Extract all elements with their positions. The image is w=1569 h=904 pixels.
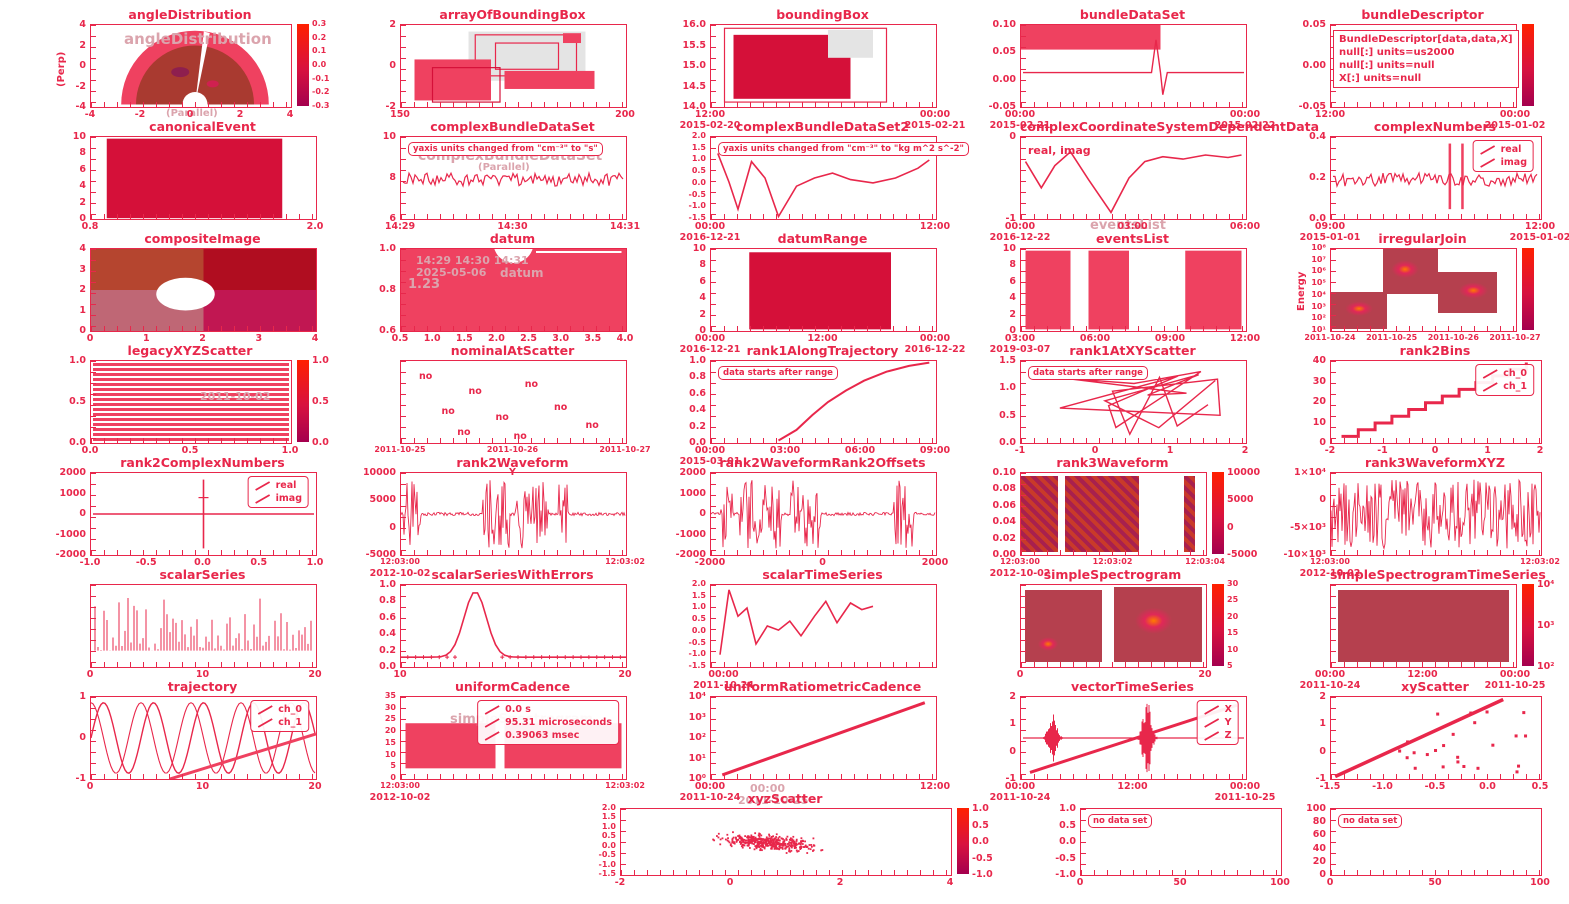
- panel-title-complexNumbers: complexNumbers: [1330, 119, 1540, 134]
- legend-entry: imag: [255, 492, 302, 505]
- y-tick-label: 0.5: [660, 166, 706, 175]
- y-tick-label: 2: [40, 284, 86, 295]
- y-tick-label: 1.5: [660, 143, 706, 152]
- y-axis-label: Energy: [1296, 272, 1307, 311]
- nominal-marker: no: [554, 402, 567, 413]
- axes-scalarSeries: [90, 584, 317, 668]
- y-tick-label: 30: [350, 703, 396, 712]
- y-tick-label: 1: [1280, 718, 1326, 729]
- axes-boundingBox: [710, 24, 937, 108]
- panel-title-compositeImage: compositeImage: [90, 231, 315, 246]
- y-tick-label: 2.0: [660, 131, 706, 140]
- colorbar-tick-label: 0.0: [312, 60, 326, 69]
- y-tick-label: -1.0: [660, 201, 706, 210]
- legend-line-icon: [1482, 382, 1498, 392]
- y-tick-label: 1.0: [660, 154, 706, 163]
- y-tick-label: 0.02: [970, 533, 1016, 544]
- y-tick-label: 0.8: [350, 284, 396, 295]
- colorbar-tick-label: 25: [1227, 595, 1238, 604]
- panel-title-rank2Bins: rank2Bins: [1330, 343, 1540, 358]
- ghost-text: 2011-10-02: [200, 390, 270, 403]
- legend-entry: real: [1480, 143, 1527, 156]
- y-tick-label: -1.0: [660, 649, 706, 658]
- y-tick-label: 1.0: [40, 355, 86, 366]
- plot-area: [1021, 249, 1246, 331]
- y-tick-label: 60: [1280, 829, 1326, 840]
- legend-entry: ch_1: [257, 716, 302, 729]
- nominal-marker: no: [457, 427, 470, 438]
- y-tick-label: 1: [40, 305, 86, 316]
- plot-area: [91, 585, 316, 667]
- y-tick-label: 0.04: [970, 516, 1016, 527]
- annotation-note: real, imag: [1028, 144, 1091, 157]
- y-tick-label: 0: [350, 60, 396, 71]
- legend-line-icon: [1480, 145, 1496, 155]
- legend-entry: 0.0 s: [484, 703, 612, 716]
- panel-title-uniformRatiometricCadence: uniformRatiometricCadence: [710, 679, 935, 694]
- x-tick-label: 2: [798, 877, 882, 888]
- legend-label: 0.0 s: [505, 703, 531, 716]
- legend-label: ch_1: [278, 716, 302, 729]
- legend-box: XYZ: [1197, 700, 1239, 745]
- colorbar-tick-label: 30: [1227, 579, 1238, 588]
- y-tick-label: 16.0: [660, 19, 706, 30]
- legend-line-icon: [257, 705, 273, 715]
- y-tick-label: 0.5: [570, 831, 616, 840]
- x-tick-label: 00:00: [978, 781, 1062, 792]
- axes-scalarSeriesWithErrors: [400, 584, 627, 668]
- plot-area: [401, 473, 626, 555]
- legend-entry: Y: [1204, 716, 1232, 729]
- x-tick-label: 12:03:02: [1498, 557, 1569, 566]
- x-tick-label: 0: [688, 877, 772, 888]
- y-tick-label: 14.5: [660, 81, 706, 92]
- y-tick-label: -0.5: [660, 190, 706, 199]
- legend-label: ch_0: [1503, 367, 1527, 380]
- y-tick-label: 20: [1280, 856, 1326, 867]
- colorbar-tick-label: 1.0: [972, 803, 989, 814]
- colorbar-tick-label: 10000: [1227, 467, 1260, 478]
- x-date-label: 2011-10-25: [1203, 792, 1287, 803]
- y-tick-label: 2: [970, 691, 1016, 702]
- y-tick-label: 10000: [350, 467, 396, 478]
- panel-title-angleDistribution: angleDistribution: [90, 7, 290, 22]
- y-tick-label: 0.0: [570, 841, 616, 850]
- panel-title-datumRange: datumRange: [710, 231, 935, 246]
- colorbar-tick-label: 10²: [1537, 661, 1554, 672]
- y-tick-label: 2: [350, 19, 396, 30]
- panel-title-rank2Waveform: rank2Waveform: [400, 455, 625, 470]
- legend-entry: 95.31 microseconds: [484, 716, 612, 729]
- y-tick-label: 0.05: [1280, 19, 1326, 30]
- y-tick-label: 40: [1280, 355, 1326, 366]
- legend-entry: 0.39063 msec: [484, 729, 612, 742]
- y-tick-label: 10: [350, 750, 396, 759]
- legend-entry: ch_0: [257, 703, 302, 716]
- legend-label: Y: [1225, 716, 1232, 729]
- nominal-marker: no: [442, 406, 455, 417]
- x-tick-label: 12:03:02: [583, 781, 667, 790]
- legend-box: ch_0ch_1: [1475, 364, 1534, 396]
- y-tick-label: 6: [970, 276, 1016, 287]
- y-tick-label: 8: [660, 259, 706, 270]
- axes-rank2WaveformRank2Offsets: [710, 472, 937, 556]
- colorbar: [1212, 472, 1224, 554]
- y-tick-label: 100: [1280, 803, 1326, 814]
- y-tick-label: 0.0: [1030, 836, 1076, 847]
- y-tick-label: 2: [660, 309, 706, 320]
- y-tick-label: 1.0: [570, 822, 616, 831]
- plot-area: [711, 25, 936, 107]
- legend-label: ch_0: [278, 703, 302, 716]
- y-tick-label: 8: [970, 259, 1016, 270]
- y-tick-label: 15: [350, 738, 396, 747]
- legend-line-icon: [255, 494, 271, 504]
- panel-title-irregularJoin: irregularJoin: [1330, 231, 1515, 246]
- panel-title-rank2WaveformRank2Offsets: rank2WaveformRank2Offsets: [710, 455, 935, 470]
- panel-title-trajectory: trajectory: [90, 679, 315, 694]
- y-tick-label: -5×10³: [1280, 522, 1326, 533]
- y-tick-label: -0.5: [660, 638, 706, 647]
- y-tick-label: 0.00: [970, 74, 1016, 85]
- colorbar-tick-label: 0: [1227, 522, 1234, 533]
- y-tick-label: 5000: [350, 494, 396, 505]
- panel-title-simpleSpectrogram: simpleSpectrogram: [1020, 567, 1205, 582]
- axes-xyzScatter: [620, 808, 952, 876]
- plot-area: [401, 585, 626, 667]
- status-badge: no data set: [1088, 814, 1152, 828]
- x-tick-label: -2: [578, 877, 662, 888]
- legend-entry: ch_1: [1482, 380, 1527, 393]
- legend-label: real: [1501, 143, 1522, 156]
- plot-area: [91, 249, 316, 331]
- panel-title-eventsList: eventsList: [1020, 231, 1245, 246]
- y-tick-label: 10: [350, 131, 396, 142]
- plot-area: [401, 25, 626, 107]
- legend-line-icon: [257, 718, 273, 728]
- axes-nominalAtScatter: nonononononononono: [400, 360, 627, 444]
- colorbar-tick-label: -1.0: [972, 869, 993, 880]
- panel-title-rank1AtXYScatter: rank1AtXYScatter: [1020, 343, 1245, 358]
- colorbar-tick-label: -0.1: [312, 74, 330, 83]
- panel-title-bundleDescriptor: bundleDescriptor: [1330, 7, 1515, 22]
- y-tick-label: 10³: [660, 712, 706, 723]
- y-tick-label: 10: [660, 243, 706, 254]
- axes-xyScatter: [1330, 696, 1542, 780]
- heat-tile: [1021, 476, 1058, 551]
- y-tick-label: 15.5: [660, 40, 706, 51]
- plot-area: [711, 473, 936, 555]
- panel-title-xyzScatter: xyzScatter: [620, 791, 950, 806]
- heat-tile: [1114, 587, 1203, 662]
- legend-label: imag: [276, 492, 302, 505]
- y-tick-label: 0.4: [350, 628, 396, 639]
- legend-line-icon: [484, 705, 500, 715]
- x-tick-label: 0: [1038, 877, 1122, 888]
- colorbar-tick-label: 1.0: [312, 355, 329, 366]
- colorbar-tick-label: 10⁴: [1537, 579, 1554, 590]
- panel-title-xyScatter: xyScatter: [1330, 679, 1540, 694]
- heat-tile: [1025, 590, 1103, 662]
- axes-rank3Waveform: [1020, 472, 1207, 556]
- panel-title-rank3WaveformXYZ: rank3WaveformXYZ: [1330, 455, 1540, 470]
- heat-block: [1338, 590, 1508, 662]
- plot-area: [711, 585, 936, 667]
- x-tick-label: 20: [273, 781, 357, 792]
- y-tick-label: 0: [1280, 746, 1326, 757]
- y-tick-label: 20: [350, 726, 396, 735]
- panel-title-datum: datum: [400, 231, 625, 246]
- colorbar: [1522, 248, 1534, 330]
- nominal-marker: no: [496, 412, 509, 423]
- legend-line-icon: [1204, 718, 1220, 728]
- y-tick-label: 0.6: [350, 612, 396, 623]
- y-tick-label: 2: [970, 309, 1016, 320]
- ghost-text: (Parallel): [478, 162, 530, 173]
- x-tick-label: 12:03:00: [978, 557, 1062, 566]
- x-tick-label: 12:03:02: [1071, 557, 1155, 566]
- y-tick-label: 1.0: [660, 602, 706, 611]
- panel-title-arrayOfBoundingBox: arrayOfBoundingBox: [400, 7, 625, 22]
- axes-rank2Waveform: [400, 472, 627, 556]
- colorbar-tick-label: 0.5: [312, 396, 329, 407]
- legend-entry: X: [1204, 703, 1232, 716]
- legend-label: ch_1: [1503, 380, 1527, 393]
- nominal-marker: no: [469, 386, 482, 397]
- y-tick-label: 0.2: [1280, 172, 1326, 183]
- y-tick-label: 0.10: [970, 467, 1016, 478]
- axes-simpleSpectrogramTimeSeries: [1330, 584, 1517, 668]
- nominal-marker: no: [586, 420, 599, 431]
- y-tick-label: 5: [350, 761, 396, 770]
- x-tick-label: 12:03:00: [358, 557, 442, 566]
- heat-tile: [1065, 476, 1139, 551]
- plot-area: [1331, 697, 1541, 779]
- y-tick-label: 1.0: [350, 579, 396, 590]
- y-tick-label: 10¹: [660, 753, 706, 764]
- panel-title-canonicalEvent: canonicalEvent: [90, 119, 315, 134]
- descriptor-line: null[:] units=null: [1339, 59, 1513, 72]
- axes-simpleSpectrogram: [1020, 584, 1207, 668]
- y-tick-label: 0.08: [970, 483, 1016, 494]
- plot-area: [711, 697, 936, 779]
- legend-box: ch_0ch_1: [250, 700, 309, 732]
- axes-rank3WaveformXYZ: [1330, 472, 1542, 556]
- y-tick-label: 0.8: [350, 595, 396, 606]
- colorbar-tick-label: 20: [1227, 612, 1238, 621]
- y-tick-label: 0.2: [350, 645, 396, 656]
- plot-area: [1021, 25, 1246, 107]
- colorbar-tick-label: 5: [1227, 661, 1233, 670]
- descriptor-line: BundleDescriptor[data,data,X]: [1339, 33, 1513, 46]
- legend-line-icon: [1482, 369, 1498, 379]
- legend-line-icon: [1204, 705, 1220, 715]
- y-tick-label: 3: [40, 264, 86, 275]
- y-tick-label: 0.06: [970, 500, 1016, 511]
- y-tick-label: 0.8: [660, 371, 706, 382]
- panel-title-legacyXYZScatter: legacyXYZScatter: [90, 343, 290, 358]
- descriptor-line: null[:] units=us2000: [1339, 46, 1513, 59]
- heat-tile: [1383, 249, 1439, 294]
- colorbar: [1522, 24, 1534, 106]
- legend-entry: ch_0: [1482, 367, 1527, 380]
- colorbar-tick-label: 0.2: [312, 33, 326, 42]
- colorbar-tick-label: 0.0: [312, 437, 329, 448]
- y-tick-label: 0.4: [1280, 131, 1326, 142]
- legend-box: realimag: [248, 476, 309, 508]
- panel-title-boundingBox: boundingBox: [710, 7, 935, 22]
- y-tick-label: 0.0: [660, 178, 706, 187]
- axes-datumRange: [710, 248, 937, 332]
- y-tick-label: 0: [1280, 494, 1326, 505]
- y-tick-label: 0: [970, 746, 1016, 757]
- plot-area: [621, 809, 951, 875]
- nominal-marker: no: [525, 379, 538, 390]
- y-tick-label: 1.0: [660, 355, 706, 366]
- x-tick-label: 12:00: [1091, 781, 1175, 792]
- y-tick-label: 8: [40, 147, 86, 158]
- legend-line-icon: [255, 481, 271, 491]
- y-tick-label: 4: [40, 243, 86, 254]
- y-tick-label: 0.4: [660, 404, 706, 415]
- y-tick-label: -0.5: [570, 850, 616, 859]
- nominal-marker: no: [514, 431, 527, 442]
- colorbar: [297, 24, 309, 106]
- y-tick-label: 6: [660, 276, 706, 287]
- annotation-note: 1.23: [408, 277, 440, 292]
- legend-entry: real: [255, 479, 302, 492]
- x-tick-label: 12:03:00: [1288, 557, 1372, 566]
- y-tick-label: 0: [40, 508, 86, 519]
- panel-title-rank3Waveform: rank3Waveform: [1020, 455, 1205, 470]
- y-tick-label: 10⁷: [1280, 255, 1326, 264]
- status-badge: data starts after range: [718, 366, 838, 380]
- colorbar: [1522, 584, 1534, 666]
- colorbar-tick-label: -0.5: [972, 853, 993, 864]
- ghost-text: datum: [500, 266, 543, 280]
- legend-line-icon: [1204, 731, 1220, 741]
- y-tick-label: 4: [970, 292, 1016, 303]
- y-tick-label: 1000: [40, 488, 86, 499]
- colorbar-tick-label: 0.3: [312, 19, 326, 28]
- plot-area: [711, 249, 936, 331]
- colorbar-tick-label: -5000: [1227, 549, 1257, 560]
- y-tick-label: 10⁴: [660, 691, 706, 702]
- plot-area: [1331, 473, 1541, 555]
- legend-label: imag: [1501, 156, 1527, 169]
- y-tick-label: 10⁸: [1280, 243, 1326, 252]
- colorbar-tick-label: 0.5: [972, 820, 989, 831]
- x-tick-label: 12:03:00: [358, 781, 442, 790]
- status-badge: no data set: [1338, 814, 1402, 828]
- legend-line-icon: [484, 731, 500, 741]
- y-tick-label: 0.6: [660, 388, 706, 399]
- x-tick-label: 2011-10-27: [1473, 333, 1557, 342]
- y-tick-label: 10: [1280, 417, 1326, 428]
- status-badge: data starts after range: [1028, 366, 1148, 380]
- x-date-label: 2011-10-24: [978, 792, 1062, 803]
- axes-uniformRatiometricCadence: [710, 696, 937, 780]
- legend-box: realimag: [1473, 140, 1534, 172]
- axes-bundleDataSet: [1020, 24, 1247, 108]
- y-tick-label: 0.00: [1280, 60, 1326, 71]
- y-tick-label: 10: [40, 131, 86, 142]
- y-tick-label: 8: [350, 172, 396, 183]
- colorbar-tick-label: 15: [1227, 628, 1238, 637]
- colorbar-tick-label: -0.3: [312, 101, 330, 110]
- y-tick-label: 0.5: [40, 396, 86, 407]
- colorbar-tick-label: 10³: [1537, 620, 1554, 631]
- y-tick-label: 0.2: [660, 421, 706, 432]
- y-tick-label: 1.5: [660, 591, 706, 600]
- x-tick-label: 12:03:02: [583, 557, 667, 566]
- heat-tile: [1184, 476, 1195, 551]
- panel-title-rank1AlongTrajectory: rank1AlongTrajectory: [710, 343, 935, 358]
- x-tick-label: 0: [48, 781, 132, 792]
- x-tick-label: 0: [1288, 877, 1372, 888]
- y-tick-label: 1.5: [570, 812, 616, 821]
- x-tick-label: 2: [1203, 445, 1287, 456]
- axes-canonicalEvent: [90, 136, 317, 220]
- y-tick-label: 20: [1280, 396, 1326, 407]
- legend-box: 0.0 s95.31 microseconds0.39063 msec: [477, 700, 619, 745]
- y-tick-label: -1000: [660, 529, 706, 540]
- y-tick-label: 0: [970, 131, 1016, 142]
- y-tick-label: 0.5: [970, 410, 1016, 421]
- colorbar-tick-label: 5000: [1227, 494, 1253, 505]
- legend-entry: imag: [1480, 156, 1527, 169]
- y-tick-label: 1.0: [350, 243, 396, 254]
- y-tick-label: 4: [40, 19, 86, 30]
- colorbar-tick-label: 0.1: [312, 46, 326, 55]
- x-date-label: 2012-10-02: [358, 792, 442, 803]
- matplotlib-figure-canvas: angleDistribution420-2-4-4-2024(Perp)0.3…: [0, 0, 1569, 904]
- y-tick-label: 1.0: [970, 382, 1016, 393]
- y-tick-label: 0: [40, 732, 86, 743]
- axes-eventsList: [1020, 248, 1247, 332]
- panel-title-complexCoordinateSystemDependentData: complexCoordinateSystemDependentData: [1020, 119, 1245, 134]
- y-tick-label: 10²: [660, 732, 706, 743]
- panel-title-scalarSeriesWithErrors: scalarSeriesWithErrors: [400, 567, 625, 582]
- x-tick-label: 10: [161, 781, 245, 792]
- y-tick-label: 0.5: [1030, 820, 1076, 831]
- x-tick-label: 50: [1138, 877, 1222, 888]
- y-tick-label: 4: [40, 180, 86, 191]
- y-tick-label: 0: [350, 522, 396, 533]
- y-tick-label: 1.0: [1030, 803, 1076, 814]
- legend-label: 95.31 microseconds: [505, 716, 612, 729]
- heat-tile: [1438, 272, 1497, 313]
- panel-title-scalarTimeSeries: scalarTimeSeries: [710, 567, 935, 582]
- nominal-marker: no: [419, 371, 432, 382]
- panel-title-complexBundleDataSet2: complexBundleDataSet2: [710, 119, 935, 134]
- y-tick-label: 1.5: [970, 355, 1016, 366]
- x-tick-label: 0.5: [1498, 781, 1569, 792]
- y-tick-label: 2000: [660, 467, 706, 478]
- descriptor-line: X[:] units=null: [1339, 72, 1513, 85]
- legend-line-icon: [1480, 158, 1496, 168]
- panel-title-nominalAtScatter: nominalAtScatter: [400, 343, 625, 358]
- legend-label: real: [276, 479, 297, 492]
- x-tick-label: 100: [1498, 877, 1569, 888]
- y-tick-label: 35: [350, 691, 396, 700]
- colorbar-tick-label: -0.2: [312, 87, 330, 96]
- y-tick-label: 0.05: [970, 46, 1016, 57]
- y-tick-label: 1: [970, 718, 1016, 729]
- y-tick-label: 30: [1280, 376, 1326, 387]
- axes-compositeImage: [90, 248, 317, 332]
- x-tick-label: 2011-10-27: [583, 445, 667, 454]
